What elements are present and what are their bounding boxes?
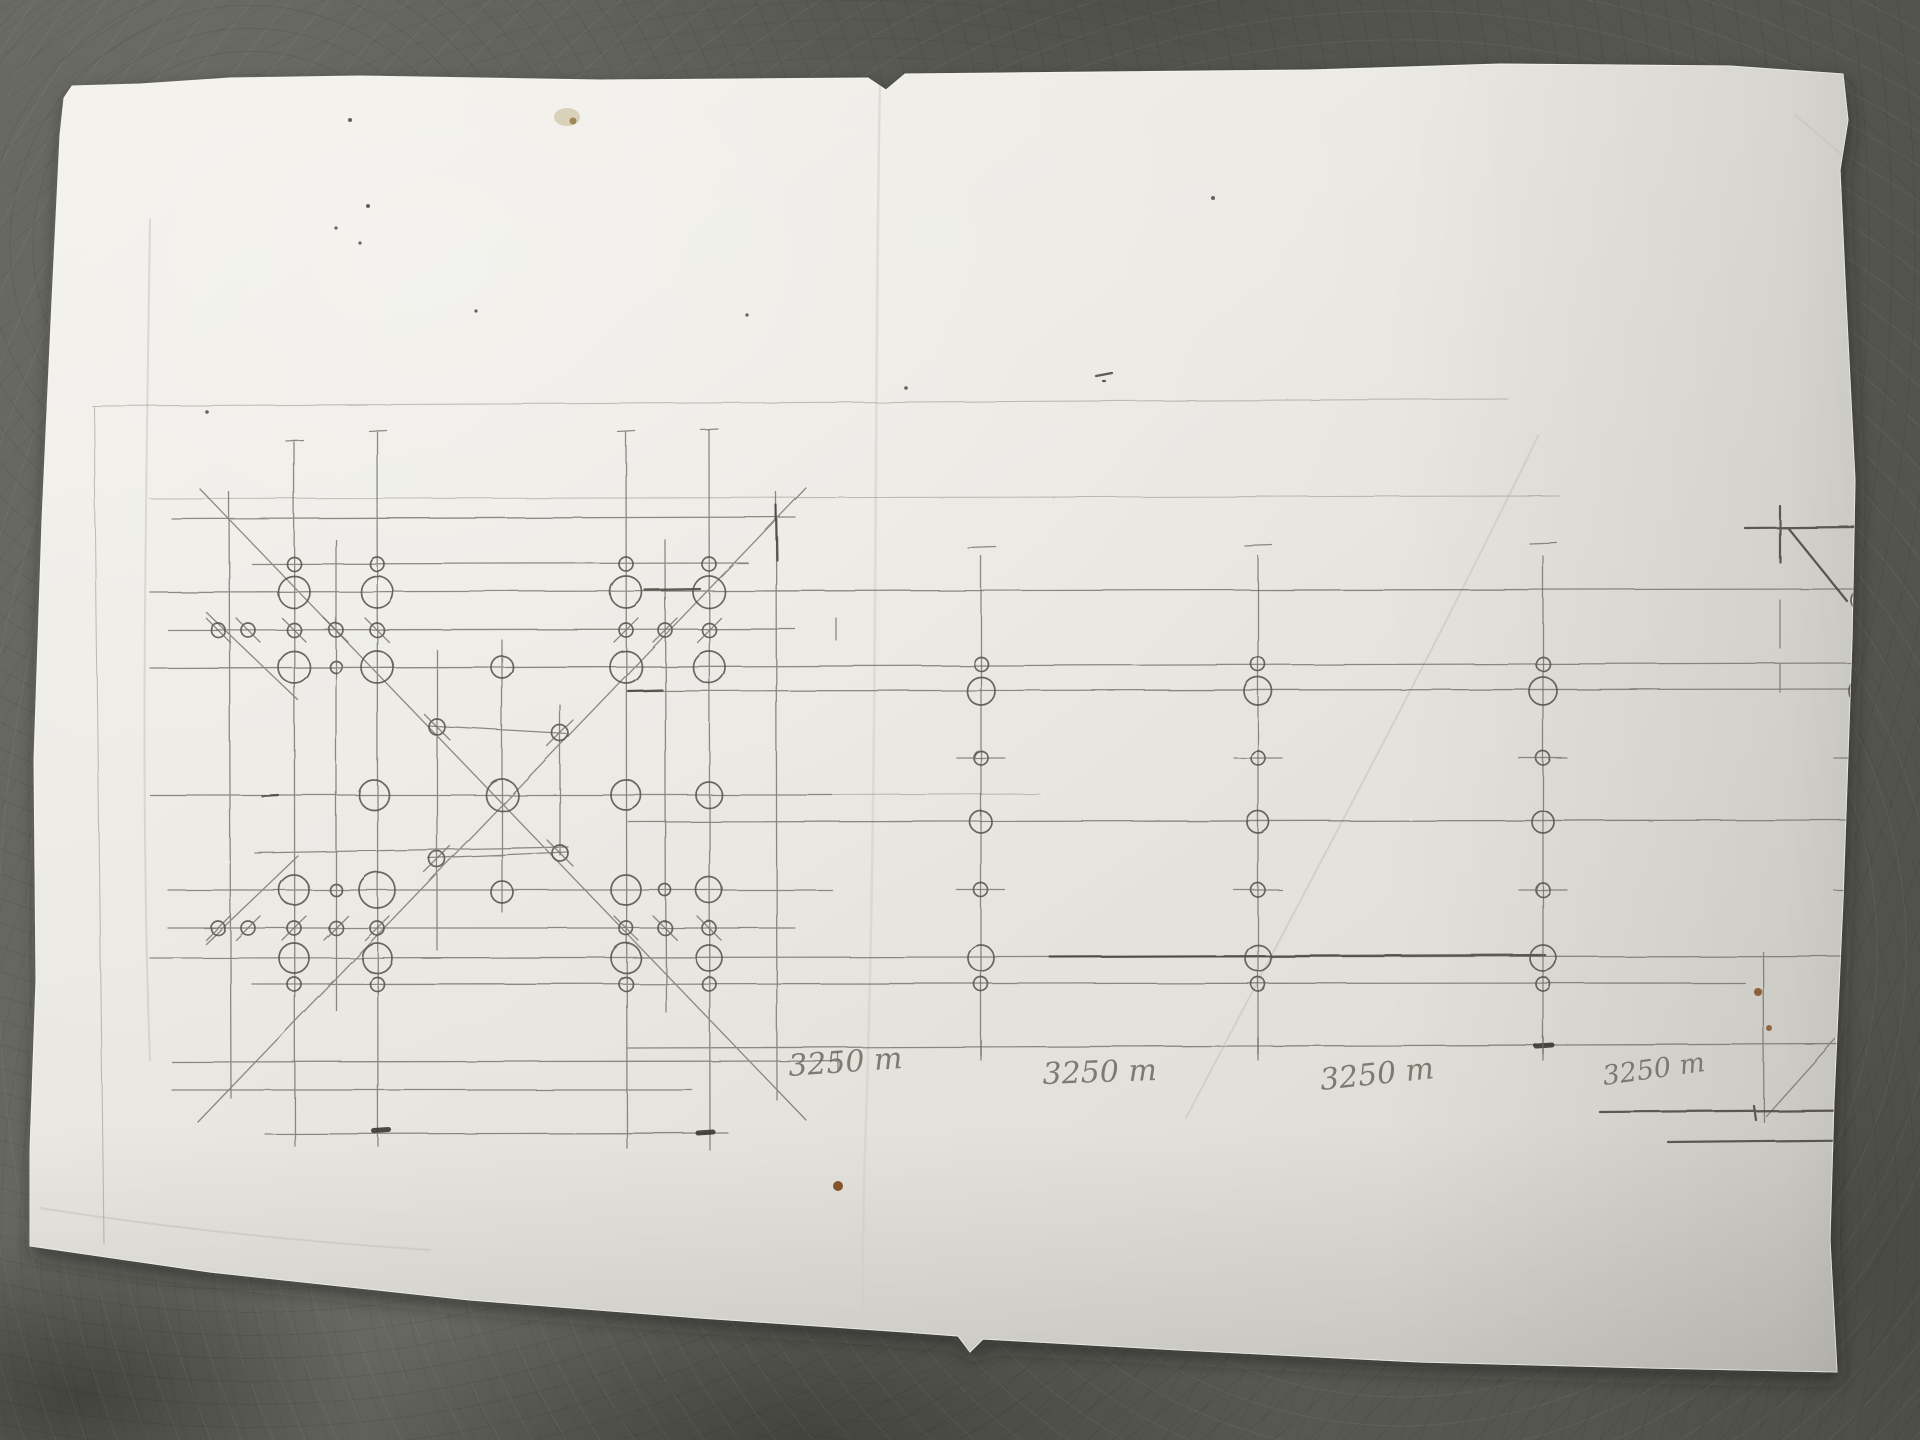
dimension-label-2: 3250 m bbox=[1042, 1053, 1157, 1092]
rust-stain bbox=[1754, 988, 1762, 996]
rust-stain bbox=[1766, 1025, 1772, 1031]
edge-partial-circle bbox=[1851, 589, 1873, 611]
yellow-stain bbox=[554, 108, 580, 126]
edge-partial-circle bbox=[1851, 811, 1873, 833]
edge-partial-circle bbox=[1849, 678, 1875, 704]
paper-lighting bbox=[0, 0, 1920, 1440]
edge-partial-circle bbox=[1849, 945, 1875, 971]
edge-partial-circle bbox=[1849, 1027, 1875, 1053]
rust-stain bbox=[833, 1181, 843, 1191]
yellow-stain-center bbox=[570, 118, 577, 125]
sketch-photo-svg: 3250 m 3250 m 3250 m 3250 m bbox=[0, 0, 1920, 1440]
photo-scene: { "scene": { "description": "Photograph … bbox=[0, 0, 1920, 1440]
